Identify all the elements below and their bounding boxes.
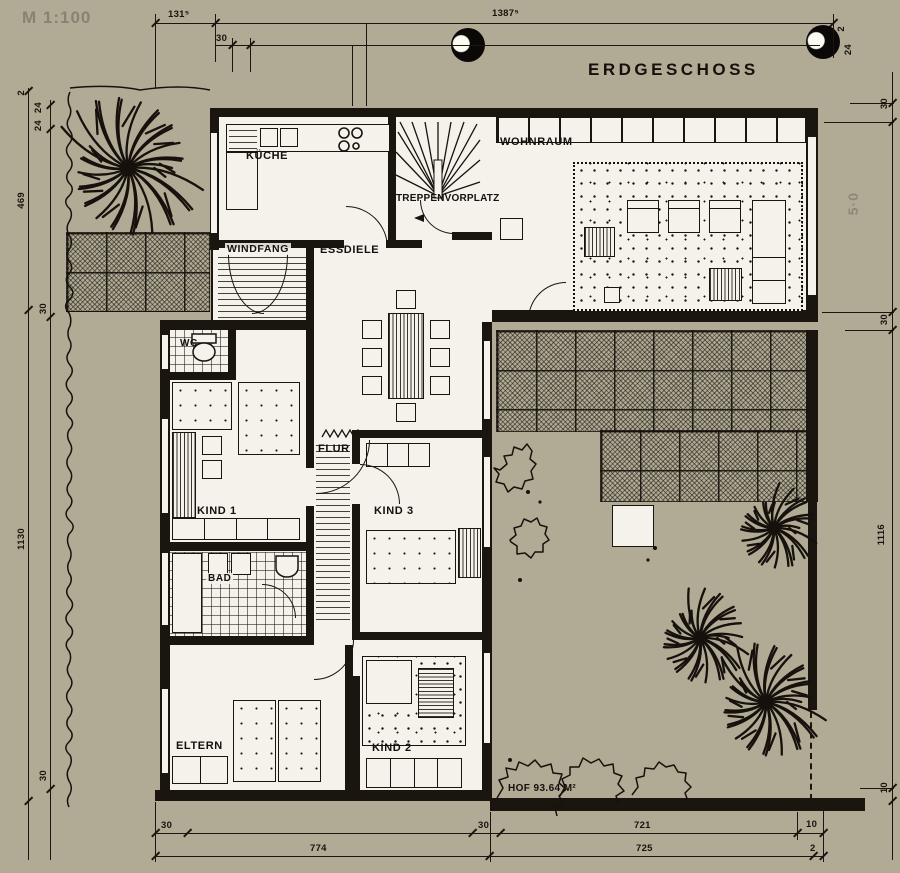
extension-line: [833, 14, 834, 58]
tree-icon: [664, 589, 748, 683]
room-label-kind1: KIND 1: [197, 505, 237, 517]
dimension-line: [50, 100, 51, 860]
extension-line: [824, 122, 894, 123]
chair: [362, 348, 382, 367]
tree-icon: [62, 98, 203, 235]
garden-wall-south: [490, 798, 865, 811]
window: [483, 340, 491, 420]
kind3-closet-row: [366, 443, 430, 467]
chair: [396, 403, 416, 422]
window: [210, 132, 218, 234]
windfang-west-glazing: [211, 250, 213, 322]
dim-label: 10: [806, 819, 817, 830]
wall: [306, 330, 314, 468]
wall: [452, 232, 492, 240]
kind1-bed: [172, 382, 232, 430]
dim-label: 10: [879, 782, 890, 793]
window: [807, 136, 817, 296]
window: [161, 552, 169, 626]
dim-label: 30: [216, 33, 227, 44]
dim-label: 30: [879, 314, 890, 325]
wall: [352, 430, 492, 438]
wall: [352, 504, 360, 632]
eltern-bed: [278, 700, 321, 782]
room-label-bad: BAD: [206, 573, 233, 584]
bath-sink: [208, 553, 228, 575]
room-label-windfang: WINDFANG: [225, 243, 291, 255]
kind1-desk: [202, 436, 222, 455]
dim-label: 2: [810, 843, 816, 854]
kind1-desk: [202, 460, 222, 479]
dimension-line: [155, 23, 833, 24]
room-label-wc: WC: [180, 338, 198, 349]
dim-label: 1116: [876, 524, 887, 545]
sofa-seat: [668, 200, 700, 233]
terrace-paving-west: [66, 232, 210, 312]
room-label-kind2: KIND 2: [372, 742, 412, 754]
chair: [430, 320, 450, 339]
kind2-desk: [366, 660, 412, 704]
planter-square: [612, 505, 654, 547]
window: [161, 688, 169, 774]
dim-label: 24: [33, 120, 44, 131]
kind1-closet-row: [172, 518, 300, 540]
dim-label: 131⁵: [168, 9, 190, 20]
extension-line: [155, 14, 156, 88]
wc-tile-floor: [166, 328, 228, 374]
chair: [362, 376, 382, 395]
dim-label: 1130: [16, 528, 27, 550]
extension-line: [366, 24, 367, 106]
wood-side-table: [584, 227, 615, 257]
extension-line: [490, 812, 491, 862]
chair: [362, 320, 382, 339]
kitchen-vent: [229, 128, 257, 149]
dim-label: 30: [161, 820, 172, 831]
dim-label: 30: [38, 770, 49, 781]
wall: [345, 645, 353, 790]
extension-line: [352, 46, 353, 106]
page-title: ERDGESCHOSS: [588, 60, 759, 80]
courtyard-label-hof: HOF 93.64 M²: [508, 783, 576, 794]
garden-wall-east: [808, 502, 817, 710]
bath-sink: [231, 553, 251, 575]
room-label-wohnraum: WOHNRAUM: [500, 136, 573, 148]
kind2-bed: [418, 668, 454, 718]
wall: [386, 240, 422, 248]
kind3-rug: [366, 530, 456, 584]
kind1-rug: [238, 382, 300, 455]
dim-label: 30: [478, 820, 489, 831]
courtyard-wall-east: [806, 330, 818, 502]
wall: [352, 676, 360, 800]
window: [483, 652, 491, 744]
sofa-seat: [709, 200, 741, 233]
dim-label: 725: [636, 843, 653, 854]
room-label-kind3: KIND 3: [374, 505, 414, 517]
wall: [160, 636, 306, 645]
dim-label: 469: [16, 192, 27, 209]
room-label-kueche: KÜCHE: [246, 150, 288, 162]
wall: [160, 320, 314, 330]
dimension-line: [155, 833, 823, 834]
dim-label: 30: [879, 98, 890, 109]
bathtub: [172, 553, 202, 633]
kitchen-sink: [280, 128, 298, 147]
floor-plan-sheet: n diesen Pre uch für Sie bereit besuchen…: [0, 0, 900, 873]
chair: [430, 376, 450, 395]
dim-label: 24: [33, 102, 44, 113]
kitchen-sink: [260, 128, 278, 147]
courtyard-paving-upper: [496, 330, 808, 432]
stool: [604, 287, 620, 303]
extension-line: [155, 802, 156, 862]
sofa-seat: [627, 200, 659, 233]
room-label-treppenvorplatz: TREPPENVORPLATZ: [396, 193, 499, 204]
lounge-chair-group: [752, 200, 786, 304]
chair: [430, 348, 450, 367]
window: [161, 418, 169, 514]
eltern-window-seat: [172, 756, 228, 784]
extension-line: [250, 38, 251, 72]
wall-shelf: [500, 218, 523, 240]
wall: [160, 372, 236, 380]
extension-line: [845, 330, 894, 331]
window: [161, 334, 169, 370]
extension-line: [232, 38, 233, 72]
wall: [352, 632, 492, 640]
wall: [306, 242, 314, 320]
dimension-line: [892, 72, 893, 860]
extension-line: [797, 812, 798, 840]
wood-side-table: [709, 268, 742, 301]
room-label-essdiele: ESSDIELE: [320, 244, 379, 256]
dimension-line: [215, 45, 820, 46]
wall: [160, 542, 314, 551]
room-label-eltern: ELTERN: [176, 740, 223, 752]
window: [483, 456, 491, 548]
punch-hole: [806, 25, 840, 59]
wall: [210, 108, 818, 117]
kind2-window-seat: [366, 758, 462, 788]
pencil-dim-note: 5·0: [845, 192, 861, 215]
eltern-bed: [233, 700, 276, 782]
dining-table: [388, 313, 424, 399]
dim-label: 774: [310, 843, 327, 854]
extension-line: [823, 800, 824, 862]
dimension-line: [28, 88, 29, 860]
room-label-flur: FLUR: [318, 443, 350, 455]
boundary-dashed-line: [810, 712, 812, 800]
chair: [396, 290, 416, 309]
wall: [306, 506, 314, 645]
extension-line: [215, 14, 216, 62]
dim-label: 2: [16, 90, 27, 96]
wall: [228, 330, 236, 378]
kind1-wardrobe: [172, 432, 196, 518]
dim-label: 30: [38, 303, 49, 314]
kind3-wardrobe: [458, 528, 481, 578]
dim-label: 1387⁵: [492, 8, 519, 19]
dim-label: 721: [634, 820, 651, 831]
dim-label: 24: [843, 44, 854, 55]
scale-note: M 1:100: [22, 8, 91, 28]
courtyard-paving-lower: [600, 430, 808, 502]
extension-line: [822, 312, 894, 313]
wall: [155, 790, 492, 801]
dim-label: 2: [836, 26, 847, 32]
